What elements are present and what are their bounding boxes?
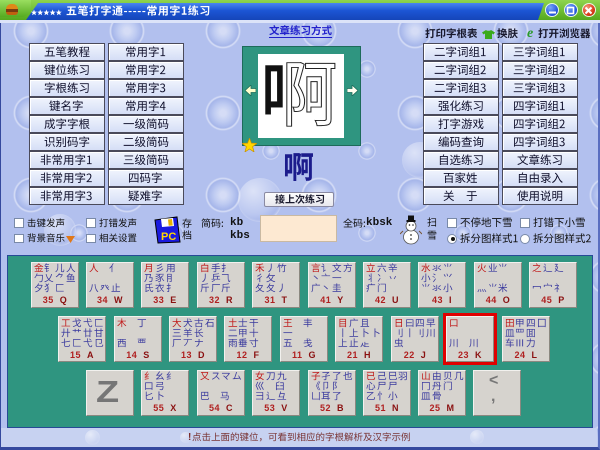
svg-text:PC: PC [161,231,176,243]
